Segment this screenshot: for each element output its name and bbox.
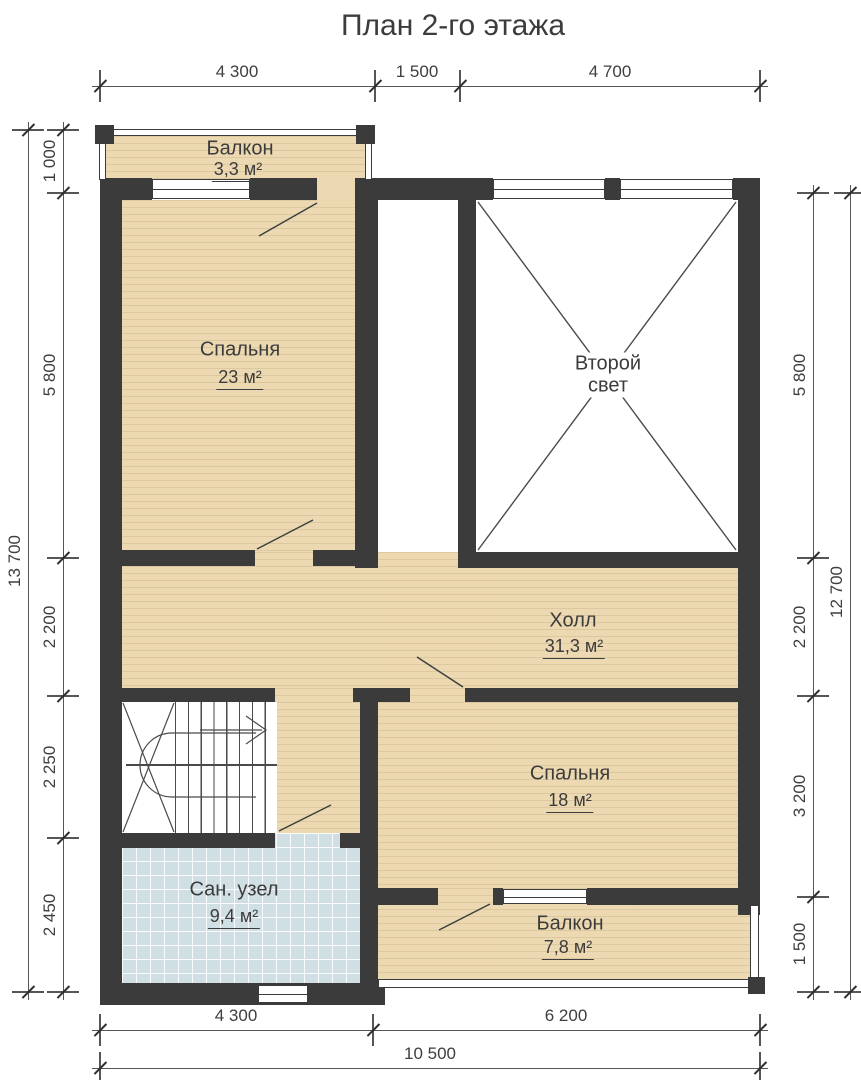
door-swing-balcony-bottom [439,904,490,930]
room-name: Балкон [536,913,603,935]
dim-label-bottom-2: 6 200 [545,1006,588,1026]
dimension-line-bottom-inner [92,1030,768,1031]
room-label-second-light-1: Второй [571,353,645,376]
room-area-bedroom-large: 23 м² [216,366,263,390]
room-name: свет [588,375,628,397]
room-name: Сан. узел [189,879,278,901]
dim-label-left-total: 13 700 [5,535,25,587]
room-label-balcony-bottom: Балкон [536,913,603,936]
floor-plan-sheet: План 2-го этажа [0,0,861,1080]
room-label-bathroom: Сан. узел [189,879,278,902]
dim-label-left-1: 1 000 [40,140,60,183]
dimension-line-left-inner [63,122,64,1000]
dim-label-left-3: 2 200 [40,606,60,649]
room-name: Спальня [530,763,610,785]
dimension-line-top [92,86,768,87]
dim-label-left-2: 5 800 [40,354,60,397]
dimension-line-right-outer [850,185,851,1000]
dim-label-right-total: 12 700 [827,566,847,618]
room-area: 18 м² [546,790,593,813]
dim-label-bottom-1: 4 300 [215,1006,258,1026]
room-name: Второй [575,353,641,375]
dim-label-right-2: 2 200 [790,606,810,649]
door-swing-bedroom-small [417,657,463,687]
dimension-line-bottom-outer [92,1068,768,1069]
room-name: Балкон [206,138,273,160]
door-swing-balcony-top [259,203,317,236]
room-label-bedroom-small: Спальня [530,763,610,786]
room-name: Холл [549,610,596,632]
room-area: 9,4 м² [208,906,260,929]
room-label-second-light-2: свет [584,375,632,398]
dim-label-top-3: 4 700 [589,62,632,82]
dim-label-left-5: 2 450 [40,894,60,937]
dimension-line-left-outer [28,122,29,1000]
room-area-balcony-bottom: 7,8 м² [542,936,594,960]
room-area: 7,8 м² [542,937,594,960]
door-swing-bedroom-large [257,520,313,549]
door-swing-bathroom [279,805,331,831]
dim-label-right-1: 5 800 [790,354,810,397]
room-area-bedroom-small: 18 м² [546,789,593,813]
room-area: 31,3 м² [543,636,605,659]
dim-label-right-4: 1 500 [790,923,810,966]
room-label-hall: Холл [549,610,596,633]
room-name: Спальня [200,339,280,361]
plan-line-overlay [0,0,861,1080]
dim-label-right-3: 3 200 [790,775,810,818]
room-area: 23 м² [216,367,263,390]
room-area-hall: 31,3 м² [543,635,605,659]
room-area-balcony-top: 3,3 м² [212,158,264,182]
dim-label-top-2: 1 500 [396,62,439,82]
dim-label-top-1: 4 300 [216,62,259,82]
dimension-line-right-inner [813,185,814,1000]
room-label-bedroom-large: Спальня [200,339,280,362]
room-area-bathroom: 9,4 м² [208,905,260,929]
stair-stringer-arc [140,733,256,797]
dim-label-bottom-total: 10 500 [404,1044,456,1064]
room-area: 3,3 м² [212,159,264,182]
dim-label-left-4: 2 250 [40,746,60,789]
